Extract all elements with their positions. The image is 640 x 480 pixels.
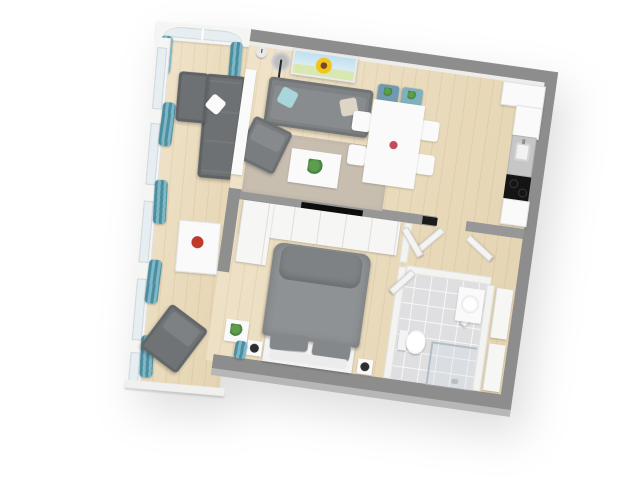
main-block xyxy=(203,29,558,417)
burner xyxy=(517,188,527,198)
armchair-cushion xyxy=(249,123,286,153)
sectional-chaise xyxy=(175,71,209,123)
burner xyxy=(509,179,519,189)
coffee-table-plant xyxy=(307,158,325,176)
nightstand-lamp xyxy=(249,343,259,353)
bath-accessory xyxy=(451,378,459,384)
shower-floor xyxy=(427,344,476,392)
double-bed xyxy=(258,242,372,374)
chair-plant xyxy=(407,91,417,101)
chair-plant xyxy=(383,87,393,97)
table-flower xyxy=(388,139,399,150)
kitchen-sink xyxy=(514,142,531,162)
coffee-table xyxy=(287,148,341,189)
nightstand xyxy=(246,340,263,357)
plant-table xyxy=(224,319,250,344)
clock-hand xyxy=(261,49,263,53)
white-cabinet-with-flowers xyxy=(175,220,221,275)
apartment xyxy=(108,10,559,423)
base-cabinet xyxy=(500,198,530,228)
teal-curtain xyxy=(153,180,168,225)
sink-ledge xyxy=(455,287,485,324)
nightstand xyxy=(356,358,373,375)
nightstand-lamp xyxy=(360,362,370,372)
floor-plan-render xyxy=(0,0,640,480)
red-flowers xyxy=(191,236,204,249)
table-plant xyxy=(229,323,244,338)
cooktop xyxy=(503,174,531,201)
round-sink xyxy=(460,294,480,314)
toilet xyxy=(397,327,428,357)
